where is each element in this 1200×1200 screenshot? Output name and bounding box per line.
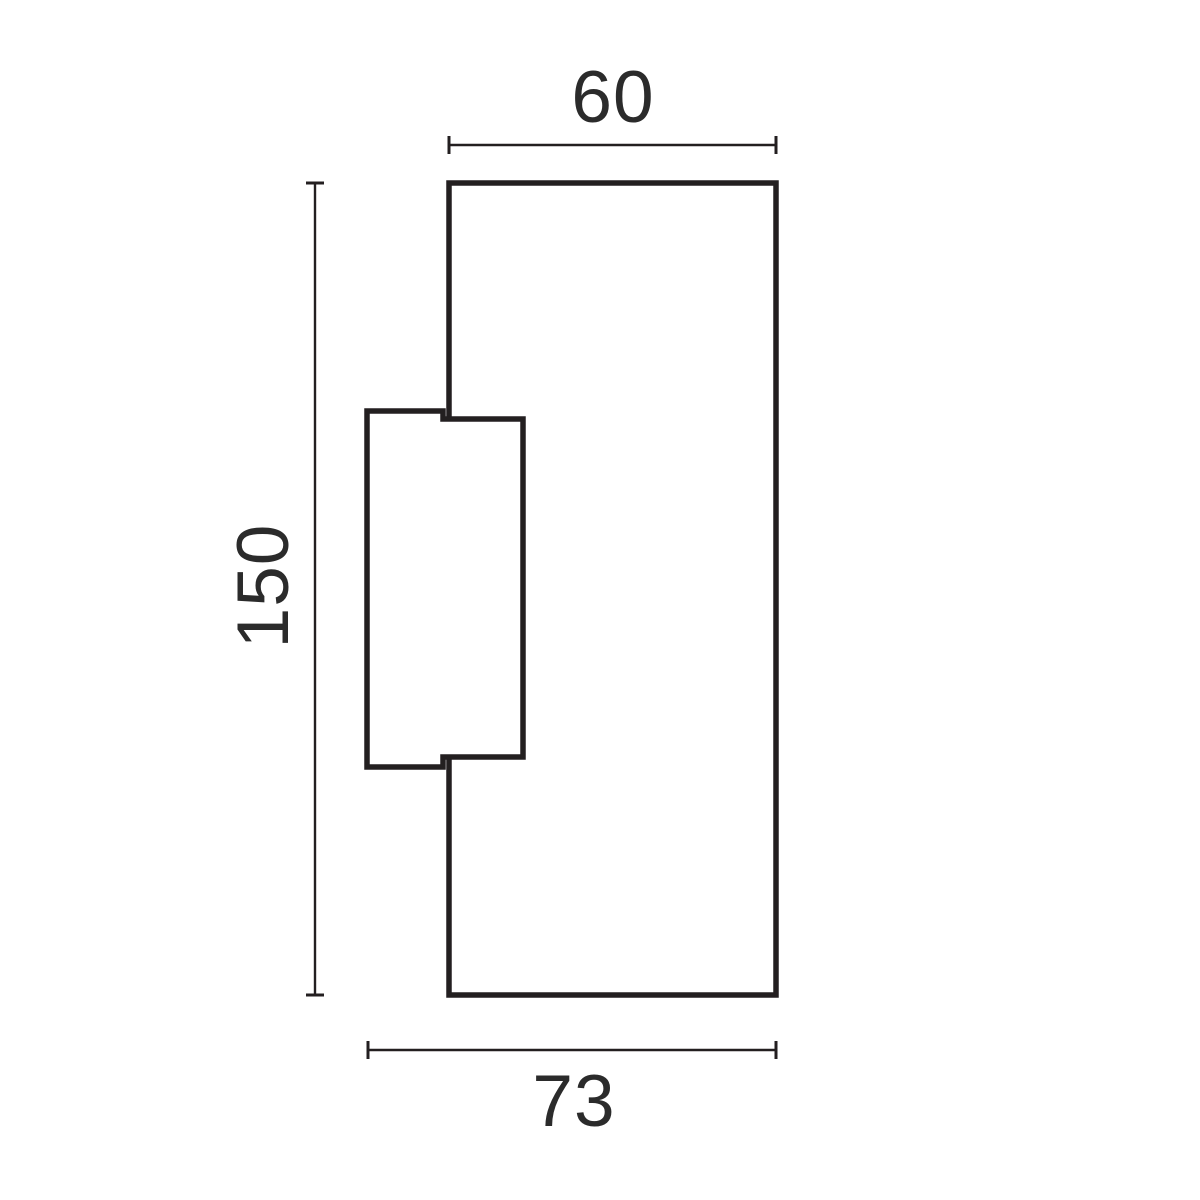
technical-drawing-canvas: 60 150 73 <box>0 0 1200 1200</box>
mounting-bracket-outline <box>367 411 523 767</box>
dimension-left-height: 150 <box>223 183 324 995</box>
dimension-bottom-depth: 73 <box>368 1041 776 1142</box>
dimension-top-width: 60 <box>449 57 776 154</box>
dimension-label-top-width: 60 <box>571 57 654 138</box>
dimension-label-left-height: 150 <box>223 524 304 649</box>
dimension-label-bottom-depth: 73 <box>532 1061 615 1142</box>
dimension-drawing-svg: 60 150 73 <box>0 0 1200 1200</box>
